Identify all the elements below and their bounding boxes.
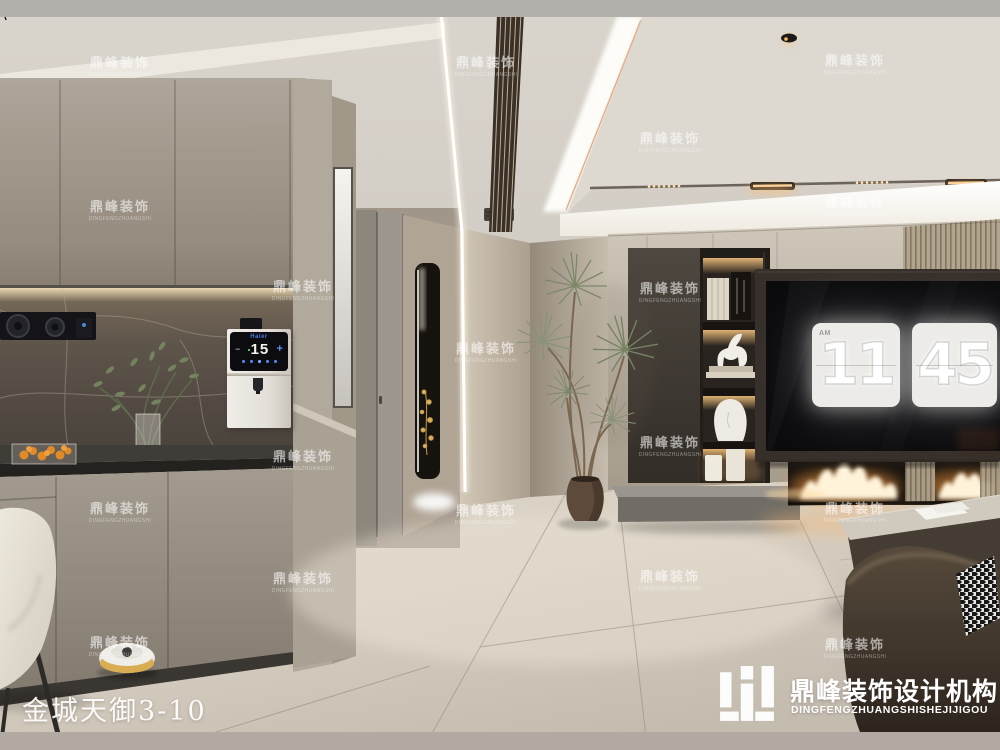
face-sculpture bbox=[714, 399, 747, 441]
water-dispenser: Haier − 15 + bbox=[227, 329, 291, 428]
door-handle bbox=[379, 396, 382, 404]
wall-slat-panel bbox=[903, 219, 1000, 277]
interior-render-image: Haier − 15 + AM 11 45 鼎峰装饰 DINGFENGZHUAN… bbox=[0, 0, 1000, 750]
robot-vacuum bbox=[97, 643, 157, 679]
vacuum-lidar bbox=[122, 647, 132, 657]
letterbox-top bbox=[0, 0, 1000, 17]
rail-indicator-light bbox=[82, 323, 86, 327]
logo-text-en: DINGFENGZHUANGSHISHEJIJIGOU bbox=[791, 704, 988, 716]
dispenser-mode-icons bbox=[230, 360, 288, 363]
dispenser-screen: Haier − 15 + bbox=[230, 332, 288, 371]
temperature-readout: 15 bbox=[248, 341, 270, 358]
logo-text-cn: 鼎峰装饰设计机构 bbox=[790, 672, 998, 708]
upper-cabinets bbox=[0, 78, 305, 287]
dingfeng-logo-icon bbox=[716, 666, 778, 724]
utensil-rail bbox=[0, 312, 96, 340]
under-cabinet-light bbox=[0, 288, 293, 302]
shelf-vases bbox=[703, 448, 761, 481]
tall-mirror bbox=[334, 168, 352, 407]
clock-meridiem: AM bbox=[819, 330, 831, 337]
hall-door bbox=[377, 212, 403, 537]
art-niche bbox=[415, 263, 440, 479]
letterbox-bottom bbox=[0, 732, 1000, 750]
flip-clock-hours: AM 11 bbox=[812, 323, 900, 407]
floor-light-pool bbox=[413, 493, 455, 511]
plus-button: + bbox=[277, 343, 283, 355]
project-title: 金城天御3-10 bbox=[22, 689, 207, 728]
studio-logo: 鼎峰装饰设计机构 DINGFENGZHUANGSHISHEJIJIGOU bbox=[716, 664, 1000, 726]
snack-tray bbox=[12, 444, 76, 464]
shelf-books bbox=[707, 272, 751, 320]
flip-clock-minutes: 45 bbox=[912, 323, 997, 407]
minus-button: − bbox=[235, 345, 240, 354]
dispenser-spout bbox=[253, 378, 263, 391]
